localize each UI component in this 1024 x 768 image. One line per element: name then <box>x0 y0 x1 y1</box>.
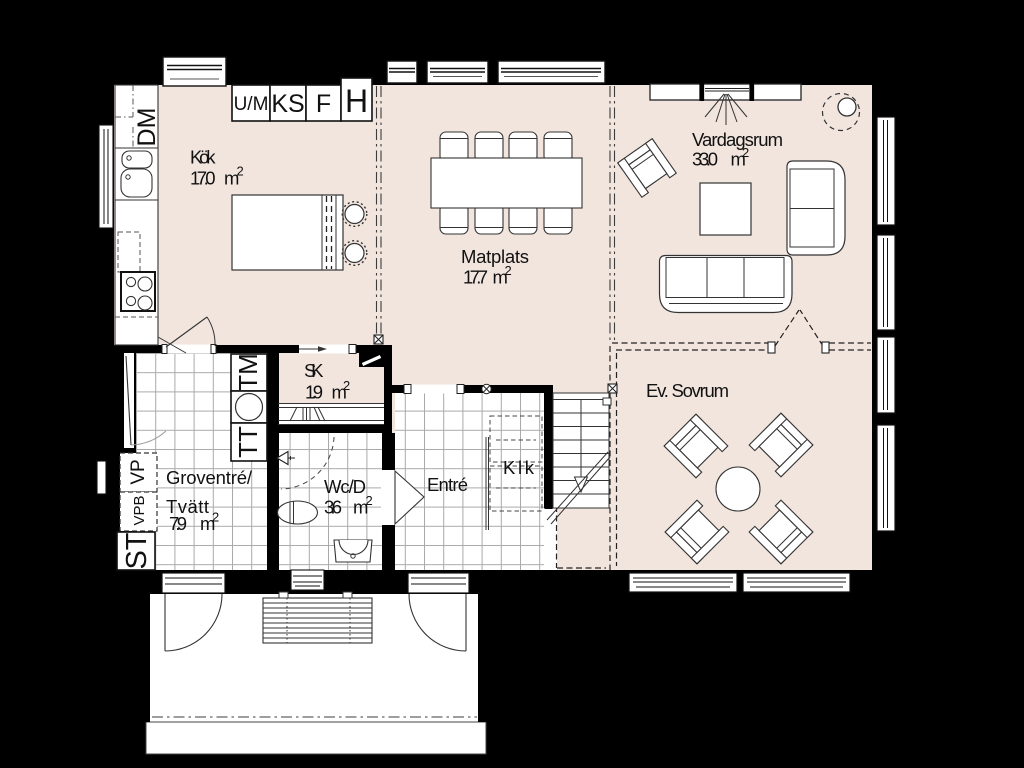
svg-text:SK: SK <box>304 360 324 381</box>
svg-text:3.6: 3.6 <box>324 497 342 518</box>
svg-text:DM: DM <box>133 108 161 147</box>
svg-text:2: 2 <box>237 164 244 179</box>
svg-text:ST: ST <box>121 532 153 569</box>
svg-text:Vardagsrum: Vardagsrum <box>692 129 783 150</box>
svg-text:33.0: 33.0 <box>692 149 718 170</box>
svg-text:U/M: U/M <box>234 94 269 115</box>
svg-text:2: 2 <box>366 493 373 508</box>
svg-text:Matplats: Matplats <box>461 246 529 267</box>
svg-text:Entré: Entré <box>427 474 468 495</box>
svg-text:Kök: Kök <box>190 147 216 168</box>
svg-text:TM: TM <box>233 353 263 391</box>
svg-text:F: F <box>316 90 331 118</box>
svg-text:1.9: 1.9 <box>305 382 323 403</box>
svg-text:2: 2 <box>343 378 350 393</box>
svg-text:2: 2 <box>505 263 512 278</box>
svg-text:VPB: VPB <box>131 495 148 525</box>
svg-text:H: H <box>345 83 368 119</box>
svg-text:Wc/D: Wc/D <box>324 476 366 497</box>
svg-text:Ev. Sovrum: Ev. Sovrum <box>646 380 729 401</box>
svg-text:TT: TT <box>233 426 263 458</box>
svg-text:7.9: 7.9 <box>169 513 187 534</box>
svg-text:17.0: 17.0 <box>190 168 216 189</box>
svg-text:KS: KS <box>271 90 304 118</box>
svg-text:2: 2 <box>212 510 219 525</box>
svg-text:17.7: 17.7 <box>463 267 488 288</box>
svg-text:2: 2 <box>742 145 749 160</box>
svg-text:Groventré/: Groventré/ <box>166 467 253 488</box>
svg-text:Klk: Klk <box>503 457 535 478</box>
svg-text:VP: VP <box>128 459 149 484</box>
